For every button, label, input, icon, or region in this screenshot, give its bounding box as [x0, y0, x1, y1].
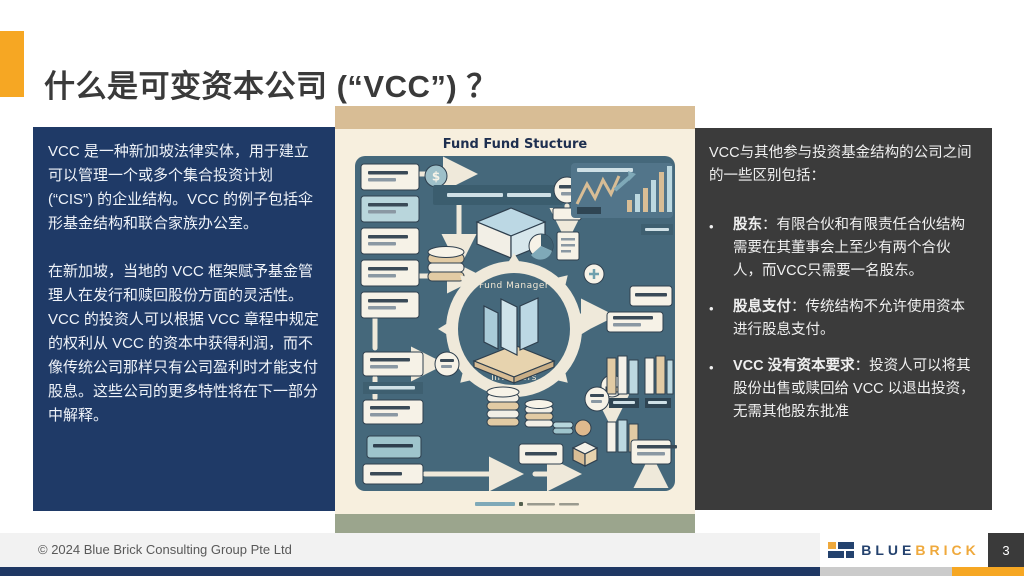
document-icon	[557, 232, 579, 260]
chart-caption-tag	[641, 224, 673, 235]
logo-text-blue: BLUE	[861, 542, 915, 558]
fund-structure-illustration: Fund Fund Stucture	[335, 106, 695, 533]
tan-band	[335, 106, 695, 129]
coins-stack-icon	[428, 247, 464, 282]
bullet-lead: VCC 没有资本要求	[733, 358, 855, 374]
badge-circle-bottom	[585, 387, 609, 411]
bullet-text: ：有限合伙和有限责任合伙结构需要在其董事会上至少有两个合伙人，而VCC只需要一名…	[733, 217, 965, 279]
title-accent-bar	[0, 31, 24, 97]
page-title: 什么是可变资本公司 (“VCC”) ？	[44, 61, 498, 106]
badge-circle-left	[435, 352, 459, 376]
bullet-icon: •	[709, 296, 733, 342]
list-item: • 股息支付：传统结构不允许使用资本进行股息支付。	[709, 296, 976, 342]
logo-wordmark: BLUEBRICK	[861, 542, 979, 558]
bottom-bar-orange	[952, 567, 1024, 576]
list-item: • VCC 没有资本要求：投资人可以将其股份出售或赎回给 VCC 以退出投资，无…	[709, 355, 976, 424]
label-box-bottom	[519, 444, 563, 464]
bullet-icon: •	[709, 214, 733, 283]
brand-logo: BLUEBRICK	[820, 533, 988, 567]
page-number-badge: 3	[988, 533, 1024, 567]
right-panel-intro: VCC与其他参与投资基金结构的公司之间的一些区别包括：	[709, 142, 976, 188]
growth-chart	[571, 163, 673, 218]
bottom-bar-gray	[820, 567, 952, 576]
left-text-panel: VCC 是一种新加坡法律实体，用于建立可以管理一个或多个集合投资计划 (“CIS…	[33, 127, 335, 511]
top-banner	[433, 185, 563, 205]
cube-icon	[573, 442, 597, 466]
logo-text-brick: BRICK	[915, 542, 979, 558]
bullet-icon: •	[709, 355, 733, 424]
svg-text:$: $	[432, 170, 440, 184]
bullet-lead: 股东	[733, 217, 762, 233]
dollar-circle-icon: $	[425, 165, 447, 187]
label-box-bottom-right	[631, 440, 677, 464]
right-text-panel: VCC与其他参与投资基金结构的公司之间的一些区别包括： • 股东：有限合伙和有限…	[693, 128, 992, 510]
slide-canvas: 什么是可变资本公司 (“VCC”) ？ VCC 是一种新加坡法律实体，用于建立可…	[0, 0, 1024, 576]
left-paragraph-2: 在新加坡，当地的 VCC 框架赋予基金管理人在发行和赎回股份方面的灵活性。 VC…	[48, 260, 320, 428]
copyright-text: © 2024 Blue Brick Consulting Group Pte L…	[38, 533, 292, 567]
plus-circle-icon	[584, 264, 604, 284]
differences-list: • 股东：有限合伙和有限责任合伙结构需要在其董事会上至少有两个合伙人，而VCC只…	[709, 214, 976, 424]
hub-top-label: Fund Manager	[479, 281, 549, 291]
left-paragraph-1: VCC 是一种新加坡法律实体，用于建立可以管理一个或多个集合投资计划 (“CIS…	[48, 140, 320, 236]
label-box-group-left	[363, 352, 423, 484]
illustration-title: Fund Fund Stucture	[443, 137, 588, 152]
green-band	[335, 514, 695, 533]
label-box-column	[361, 164, 419, 318]
bullet-lead: 股息支付	[733, 299, 791, 315]
brick-icon	[828, 542, 854, 559]
list-item: • 股东：有限合伙和有限责任合伙结构需要在其董事会上至少有两个合伙人，而VCC只…	[709, 214, 976, 283]
bottom-bar-navy	[0, 567, 820, 576]
